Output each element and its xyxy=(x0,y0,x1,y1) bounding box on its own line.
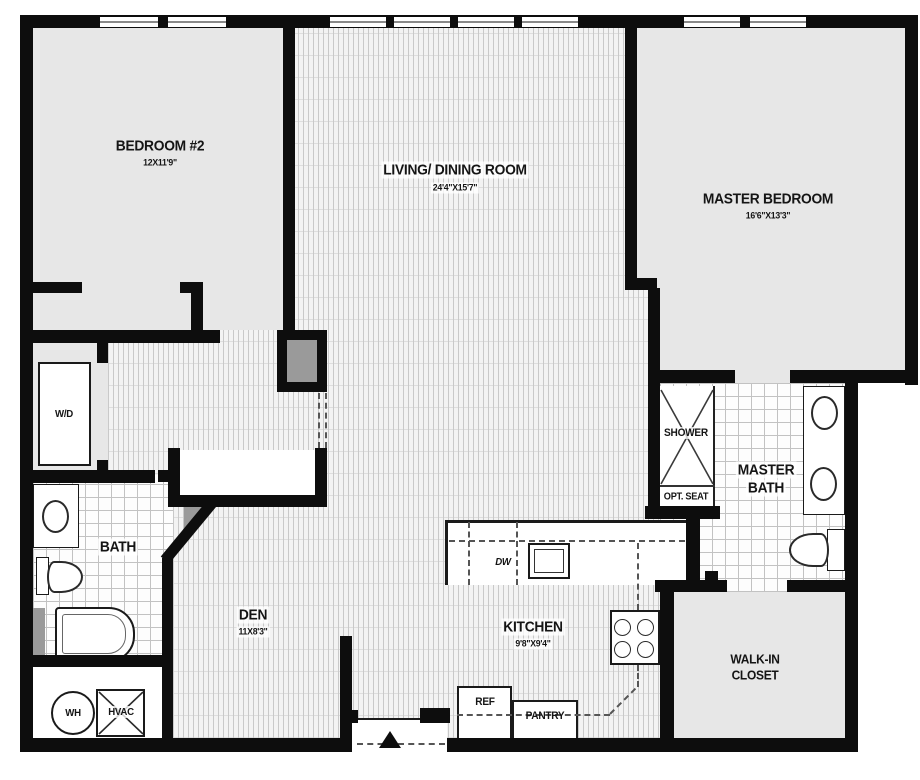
pantry-label: PANTRY xyxy=(526,710,565,722)
dishwasher-label: DW xyxy=(495,556,511,568)
opt-seat-label: OPT. SEAT xyxy=(664,492,708,503)
counter-dash-diagonal xyxy=(610,687,637,714)
floor-plan: BEDROOM #2 12X11'9" LIVING/ DINING ROOM … xyxy=(0,0,920,780)
master-bedroom-label: MASTER BEDROOM xyxy=(703,191,833,208)
washer-dryer-label: W/D xyxy=(55,408,73,420)
walk-in-closet-label-1: WALK-IN xyxy=(730,652,779,667)
entry-arrow xyxy=(379,731,401,748)
window-master-1 xyxy=(684,17,740,27)
shower-label: SHOWER xyxy=(662,427,710,439)
window-living-1 xyxy=(330,17,386,27)
master-bath-label-1: MASTER xyxy=(736,462,796,479)
den-label: DEN xyxy=(237,607,269,624)
water-heater-label: WH xyxy=(65,707,81,719)
bath-label: BATH xyxy=(98,539,138,556)
master-bedroom-dims: 16'6"X13'3" xyxy=(746,211,790,222)
living-dining-label: LIVING/ DINING ROOM xyxy=(381,162,528,179)
window-master-2 xyxy=(750,17,806,27)
refrigerator-label: REF xyxy=(475,696,494,708)
window-living-3 xyxy=(458,17,514,27)
window-bedroom2-2 xyxy=(168,17,226,27)
bedroom2-label: BEDROOM #2 xyxy=(116,138,204,155)
den-dims: 11X8'3" xyxy=(237,627,270,638)
living-dining-dims: 24'4"X15'7" xyxy=(431,183,479,194)
window-living-2 xyxy=(394,17,450,27)
plan-line-overlay xyxy=(0,0,920,780)
master-bath-label-2: BATH xyxy=(746,480,786,497)
kitchen-label: KITCHEN xyxy=(501,619,564,636)
bedroom2-dims: 12X11'9" xyxy=(143,158,177,169)
walk-in-closet-label-2: CLOSET xyxy=(732,668,779,683)
hvac-label: HVAC xyxy=(106,706,135,718)
kitchen-dims: 9'8"X9'4" xyxy=(514,639,553,650)
window-bedroom2-1 xyxy=(100,17,158,27)
window-living-4 xyxy=(522,17,578,27)
